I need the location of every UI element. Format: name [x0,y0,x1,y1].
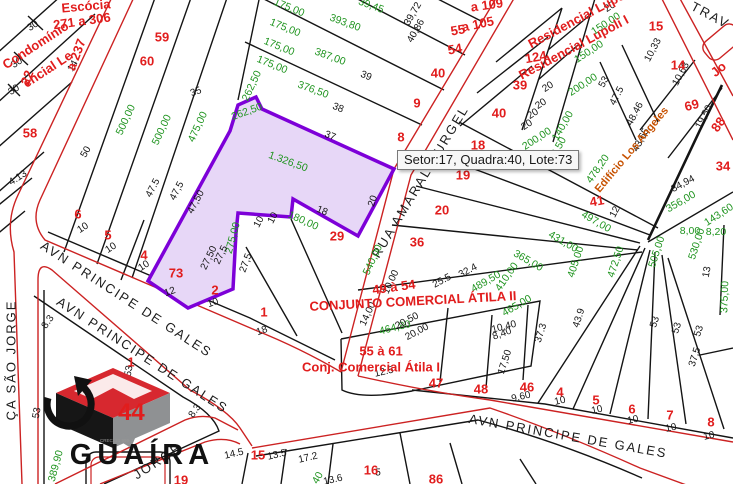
lot-number-label: 20 [435,202,449,217]
lot-number-label: 69 [683,96,701,114]
dimension-label: 4.13 [7,168,30,188]
dimension-label: 53 [597,74,612,89]
map-canvas: AVN PRINCIPE DE GALESAVN PRINCIPE DE GAL… [0,0,733,484]
measure-label: 200,00 [566,71,600,99]
dimension-label: 25.5 [431,271,454,290]
lot-number-label: Jo [708,59,729,80]
lot-number-label: 46 [520,379,534,394]
dimension-label: 27,5 [238,252,255,274]
dimension-label: 53 [692,324,706,338]
lot-number-label: 1 [260,304,267,319]
lot-number-label: 6 [628,401,635,416]
measure-label: 175,00 [268,16,302,39]
small-block-outline [700,21,733,64]
lot-number-label: 15 [251,447,265,462]
dimension-label: 8.3 [187,402,204,420]
dimension-label: 32.4 [457,261,480,280]
dimension-label: 13 [701,265,714,278]
lot-number-label: 8 [397,129,404,144]
measure-label: 376,50 [296,79,330,101]
dimension-label: 47,5 [168,180,187,203]
dimension-label: 13.6 [322,472,344,484]
lot-number-label: 59 [155,29,169,44]
measure-label: 375,00 [718,281,731,314]
measure-label: 175,00 [272,0,306,19]
dimension-label: 48.46 [624,100,646,128]
dimension-label: 39 [359,69,374,84]
dimension-label: 53 [648,315,662,329]
dimension-label: 53 [670,321,684,335]
dimension-label: 43.9 [571,307,588,329]
lot-number-label: 54 [446,40,464,57]
lot-number-label: 4 [556,384,564,399]
lot-number-label: 58 [23,125,37,140]
dimension-label: 12 [608,204,623,219]
lot-number-label: 40 [431,65,445,80]
lot-number-label: 41 [588,192,605,209]
dimension-label: 10 [206,296,221,310]
lot-number-label: a 109 [470,0,504,15]
dimension-label: 20 [540,79,556,95]
lot-number-label: 6 [74,206,81,221]
dimension-label: 50 [79,144,94,160]
lot-number-label: 19 [174,472,188,484]
measure-label: 500,00 [114,103,139,137]
measure-label: 175,00 [262,35,296,58]
measure-label: 39,45 [357,0,386,16]
dimension-label: 35 [189,85,204,99]
lot-number-label: 5 [592,392,599,407]
lot-number-label: 40 [492,105,506,120]
lot-number-label: a 105 [460,13,495,34]
logo-number: 44 [118,399,145,426]
lot-number-label: 5 [104,227,111,242]
cadastral-map[interactable]: AVN PRINCIPE DE GALESAVN PRINCIPE DE GAL… [0,0,733,484]
measure-label: 387,00 [313,46,347,68]
dimension-label: 10 [103,240,119,256]
lot-number-label: 16 [364,462,378,477]
lot-number-label: 29 [330,228,344,243]
lot-number-label: 7 [666,407,673,422]
lot-number-label: 48 [474,381,488,396]
lot-number-label: 2 [211,282,218,297]
dimension-label: 37.3 [533,322,550,344]
lot-number-label: 73 [169,265,183,280]
dimension-label: 8.3 [40,313,57,331]
lot-number-label: 4 [140,247,148,262]
measure-label: 500,00 [150,113,175,147]
dimension-label: 10 [702,429,716,442]
measure-label: 475,00 [186,110,211,144]
dimension-label: 53 [31,406,44,419]
lot-number-label: 47 [429,375,443,390]
lot-number-label: 55 à 61 [359,343,402,358]
lot-info-tooltip: Setor:17, Quadra:40, Lote:73 [397,150,579,170]
measure-label: 389,90 [46,449,66,483]
dimension-label: 47.5 [608,85,627,108]
lot-number-label: 60 [140,53,154,68]
lot-number-label: 1 [127,354,134,369]
street-name-label: ÇA SÃO JORGE [3,300,18,421]
dimension-label: 14.5 [223,446,245,461]
lot-number-label: 36 [410,234,424,249]
lot-number-label: 34 [716,158,731,173]
dimension-label: 30 [25,18,41,34]
lot-number-label: 9 [413,95,420,110]
lot-number-label: 14 [671,57,686,72]
measure-label: 472,50 [605,245,626,279]
lot-number-label: 15 [649,18,663,33]
measure-label: 8,00 [680,225,701,237]
lot-number-label: 88 [708,114,729,134]
dimension-label: 38 [331,101,346,116]
measure-label: 143,60 [702,201,733,229]
lot-number-label: 8 [707,414,714,429]
dimension-label: 17,50 [496,348,514,376]
dimension-label: 10,33 [642,36,664,64]
lot-number-label: Conj. Comercial Átila I [302,359,440,374]
street-name-label: AVN PRINCIPE DE GALES [468,411,669,461]
measure-label: 393,80 [328,12,362,34]
dimension-label: 17.2 [297,450,319,465]
highlighted-lot[interactable] [148,97,394,308]
logo-brand: GUAÍRA [70,437,214,471]
lot-number-label: 86 [429,471,443,484]
dimension-label: 10 [75,220,91,236]
lot-number-label: CONJUNTO COMERCIAL ÁTILA II [309,288,517,314]
